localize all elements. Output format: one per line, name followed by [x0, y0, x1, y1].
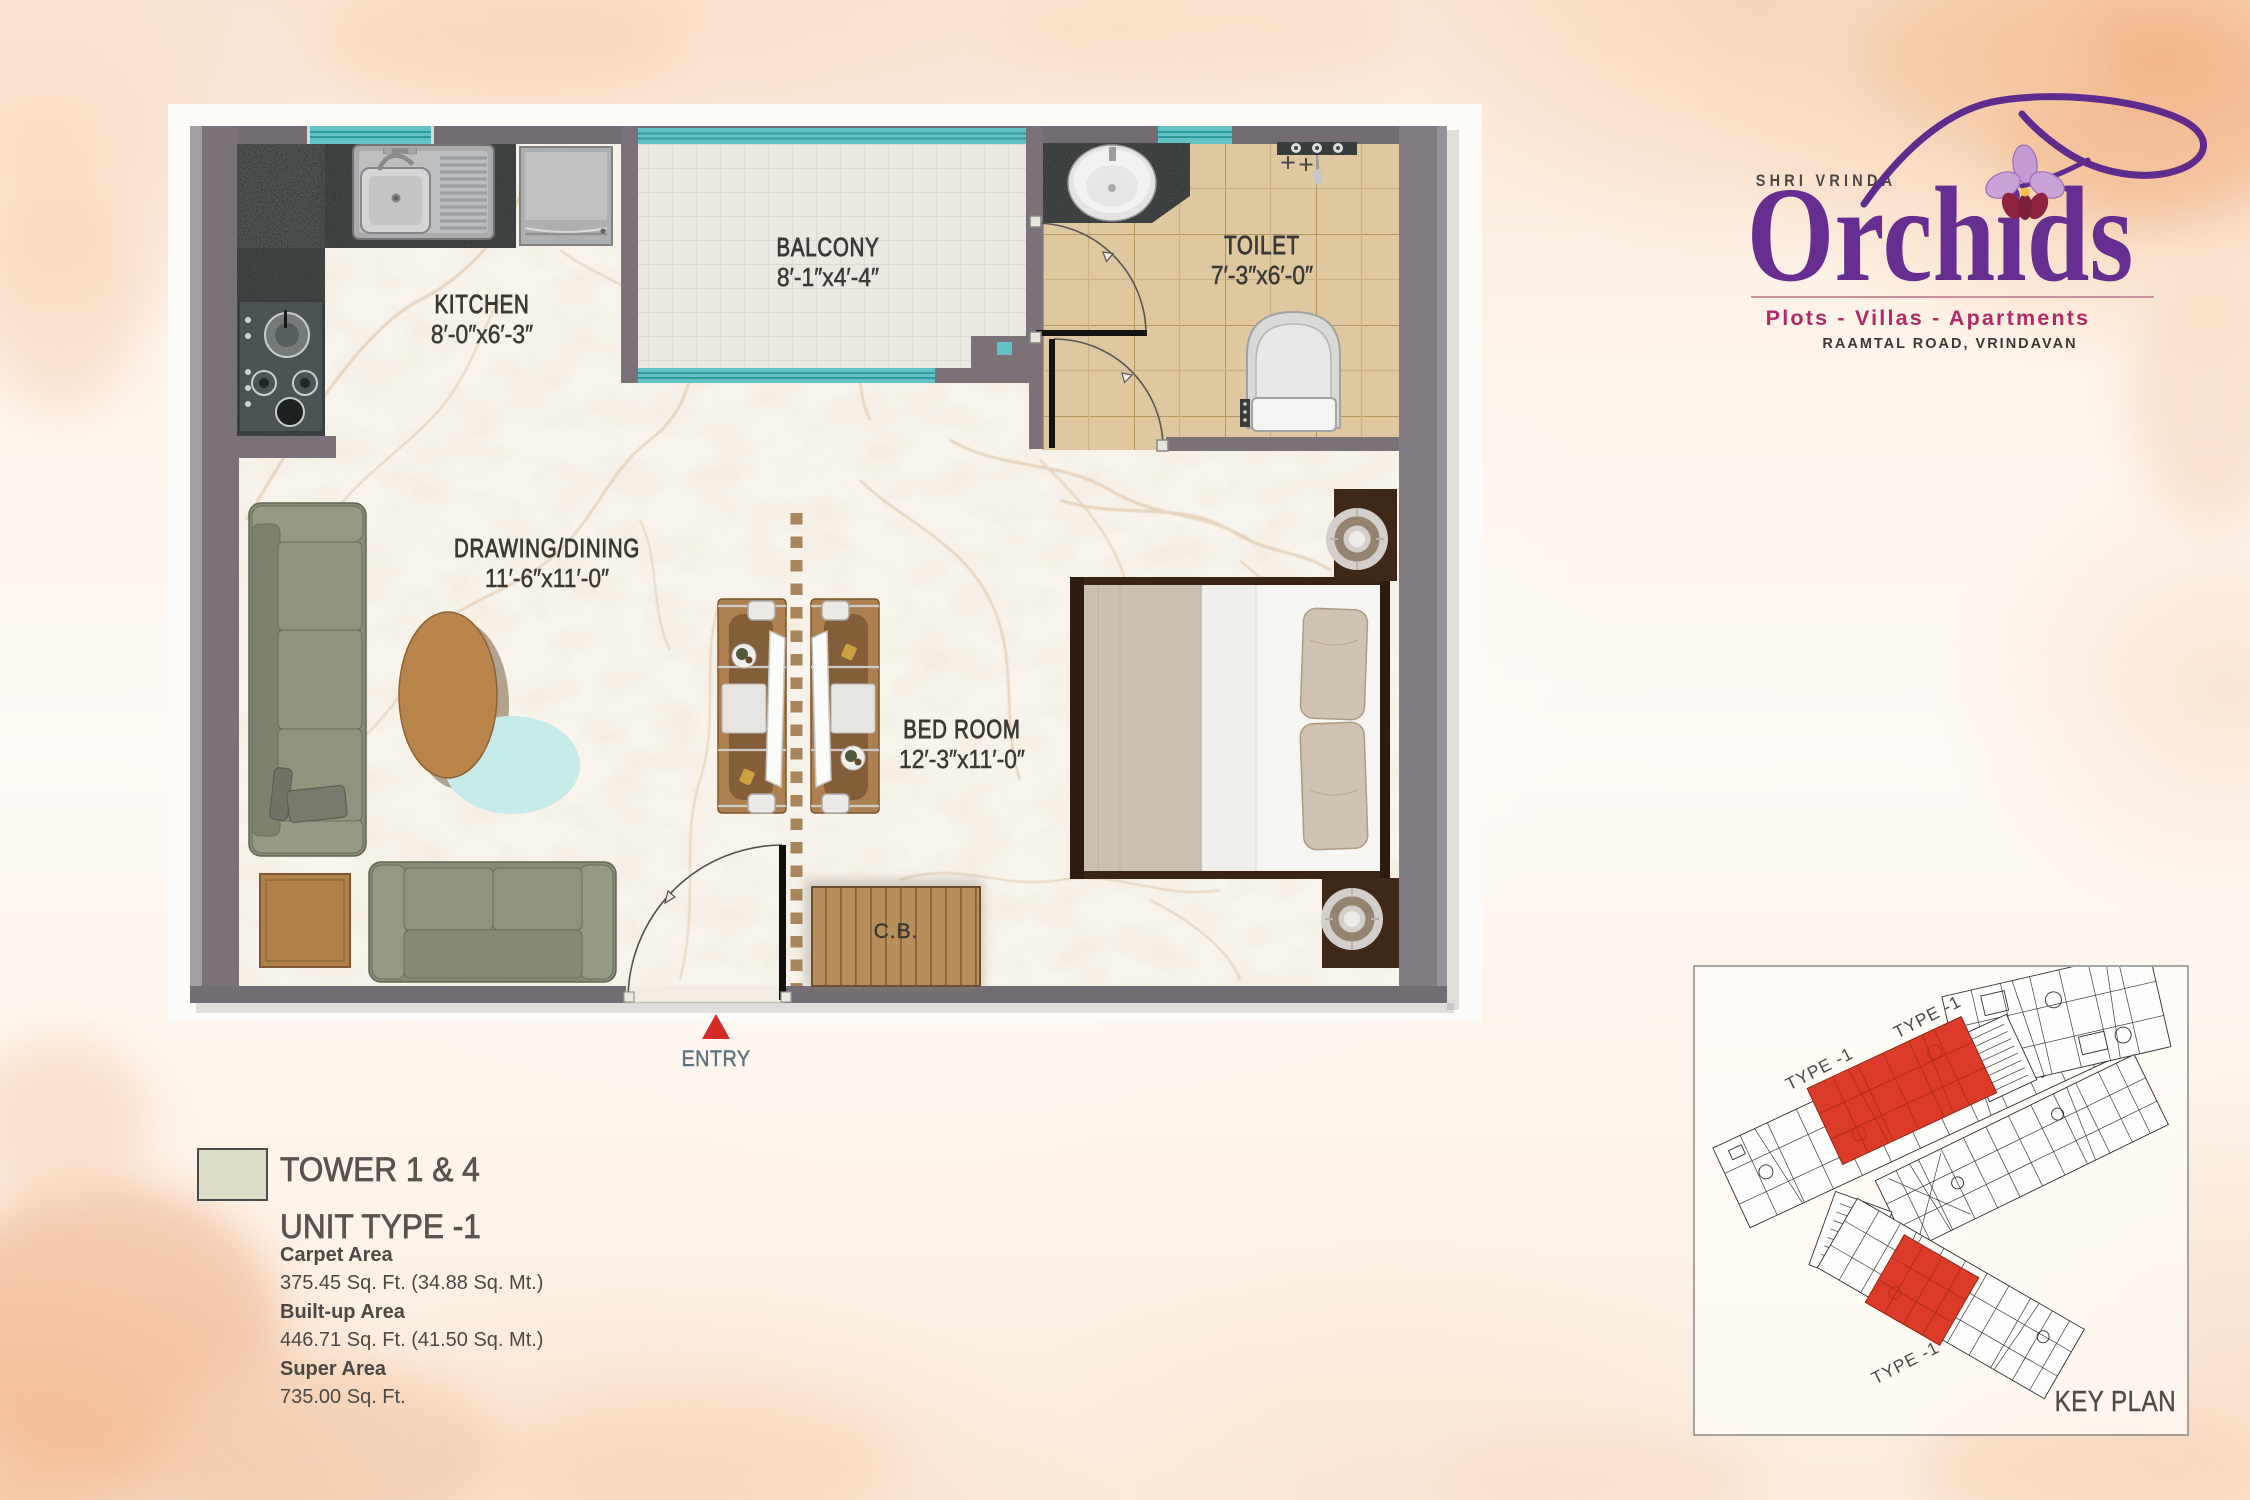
svg-text:375.45 Sq. Ft. (34.88 Sq. Mt.): 375.45 Sq. Ft. (34.88 Sq. Mt.) — [280, 1272, 543, 1294]
svg-text:BED ROOM: BED ROOM — [903, 715, 1020, 744]
svg-text:Built-up Area: Built-up Area — [280, 1301, 406, 1323]
svg-text:KITCHEN: KITCHEN — [434, 290, 529, 319]
svg-text:UNIT TYPE -1: UNIT TYPE -1 — [280, 1207, 481, 1245]
svg-text:8′-0″x6′-3″: 8′-0″x6′-3″ — [431, 321, 534, 350]
svg-text:8′-1″x4′-4″: 8′-1″x4′-4″ — [777, 264, 880, 293]
svg-text:RAAMTAL ROAD, VRINDAVAN: RAAMTAL ROAD, VRINDAVAN — [1822, 336, 2077, 352]
svg-text:735.00 Sq. Ft.: 735.00 Sq. Ft. — [280, 1386, 406, 1408]
svg-text:446.71 Sq. Ft. (41.50 Sq. Mt.): 446.71 Sq. Ft. (41.50 Sq. Mt.) — [280, 1329, 543, 1351]
svg-text:TOILET: TOILET — [1224, 231, 1300, 260]
svg-text:Orchids: Orchids — [1747, 160, 2134, 310]
svg-text:Plots - Villas - Apartments: Plots - Villas - Apartments — [1766, 306, 2091, 330]
svg-text:7′-3″x6′-0″: 7′-3″x6′-0″ — [1211, 262, 1314, 291]
svg-text:BALCONY: BALCONY — [776, 233, 879, 262]
svg-text:ENTRY: ENTRY — [682, 1047, 751, 1071]
svg-text:DRAWING/DINING: DRAWING/DINING — [454, 534, 640, 563]
svg-text:12′-3″x11′-0″: 12′-3″x11′-0″ — [899, 746, 1025, 775]
svg-text:TOWER 1 & 4: TOWER 1 & 4 — [280, 1150, 480, 1188]
svg-text:Carpet Area: Carpet Area — [280, 1244, 394, 1266]
svg-text:C.B.: C.B. — [874, 920, 919, 943]
svg-text:KEY PLAN: KEY PLAN — [2055, 1385, 2176, 1417]
svg-text:11′-6″x11′-0″: 11′-6″x11′-0″ — [485, 565, 610, 594]
svg-text:Super Area: Super Area — [280, 1358, 387, 1380]
